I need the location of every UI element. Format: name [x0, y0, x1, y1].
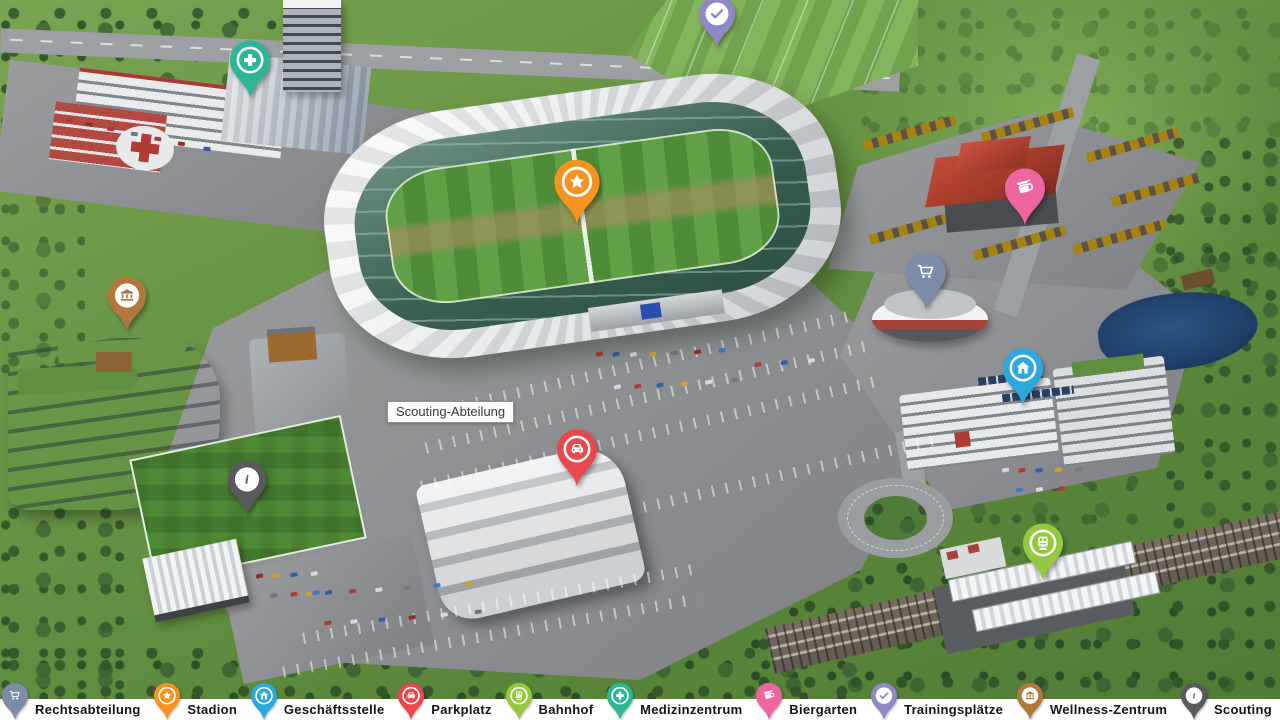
- info-icon: i: [245, 473, 249, 486]
- legend-item-label: Geschäftsstelle: [284, 702, 385, 720]
- legend-item-label: Rechtsabteilung: [35, 702, 141, 720]
- wellness-roof-box: [96, 352, 132, 372]
- scouting-building-roof-box: [267, 326, 317, 362]
- legend-pin-star-icon: [152, 682, 182, 720]
- legend-item-medizinzentrum[interactable]: Medizinzentrum: [605, 682, 742, 720]
- legend-item-label: Scouting: [1214, 702, 1272, 720]
- legend-item-rechtsabteilung[interactable]: Rechtsabteilung: [0, 682, 141, 720]
- legend-pin-car-icon: [396, 682, 426, 720]
- legend-pin-home-icon: [249, 682, 279, 720]
- legend-item-label: Trainingsplätze: [904, 702, 1003, 720]
- map-tooltip: Scouting-Abteilung: [387, 401, 514, 423]
- map-pin-scouting[interactable]: i: [225, 459, 269, 517]
- legend-item-label: Biergarten: [789, 702, 857, 720]
- legend-pin-check-icon: [869, 682, 899, 720]
- legend-pin-bank-icon: [1015, 682, 1045, 720]
- office-tower: [283, 0, 341, 92]
- legend-item-geschaeftsstelle[interactable]: Geschäftsstelle: [249, 682, 385, 720]
- map-tooltip-text: Scouting-Abteilung: [396, 404, 505, 419]
- legend-item-label: Parkplatz: [431, 702, 492, 720]
- svg-text:i: i: [1193, 691, 1196, 700]
- office-logo: [954, 431, 971, 448]
- legend-item-label: Wellness-Zentrum: [1050, 702, 1167, 720]
- stadium-entrance-banner: [640, 302, 662, 320]
- station-red-sign: [946, 550, 958, 560]
- map-pin-trainingsplaetze[interactable]: [696, 0, 738, 49]
- legend-item-label: Medizinzentrum: [640, 702, 742, 720]
- legend-pin-train-icon: [504, 682, 534, 720]
- map-pin-wellness-zentrum[interactable]: [105, 275, 149, 333]
- legend-item-trainingsplaetze[interactable]: Trainingsplätze: [869, 682, 1003, 720]
- map-pin-bahnhof[interactable]: [1020, 522, 1066, 582]
- map-pin-biergarten[interactable]: [1002, 167, 1048, 227]
- legend-item-wellness-zentrum[interactable]: Wellness-Zentrum: [1015, 682, 1167, 720]
- legend-pin-plus-icon: [605, 682, 635, 720]
- legend-pin-beer-icon: [754, 682, 784, 720]
- map-pin-rechtsabteilung[interactable]: [903, 251, 949, 311]
- legend-bar: RechtsabteilungStadionGeschäftsstellePar…: [0, 699, 1280, 720]
- legend-item-label: Bahnhof: [539, 702, 594, 720]
- map-pin-geschaeftsstelle[interactable]: [1000, 347, 1046, 407]
- station-red-sign-2: [967, 544, 979, 554]
- stadium-map: Scouting-Abteilung i RechtsabteilungStad…: [0, 0, 1280, 720]
- legend-item-biergarten[interactable]: Biergarten: [754, 682, 857, 720]
- map-pin-stadion[interactable]: [551, 158, 603, 226]
- svg-text:i: i: [245, 473, 249, 486]
- legend-item-stadion[interactable]: Stadion: [152, 682, 237, 720]
- red-cross-roof-bar: [130, 141, 159, 154]
- roundabout: [838, 478, 953, 558]
- legend-item-scouting[interactable]: iScouting: [1179, 682, 1272, 720]
- legend-item-label: Stadion: [187, 702, 237, 720]
- legend-item-bahnhof[interactable]: Bahnhof: [504, 682, 594, 720]
- map-pin-parkplatz[interactable]: [554, 428, 600, 488]
- parked-cars-medical: [66, 118, 73, 123]
- legend-pin-info-icon: i: [1179, 682, 1209, 720]
- legend-item-parkplatz[interactable]: Parkplatz: [396, 682, 492, 720]
- map-pin-medizinzentrum[interactable]: [227, 39, 273, 99]
- roundabout-green: [864, 496, 927, 540]
- info-icon: i: [1193, 691, 1196, 700]
- legend-pin-shopping-cart-icon: [0, 682, 30, 720]
